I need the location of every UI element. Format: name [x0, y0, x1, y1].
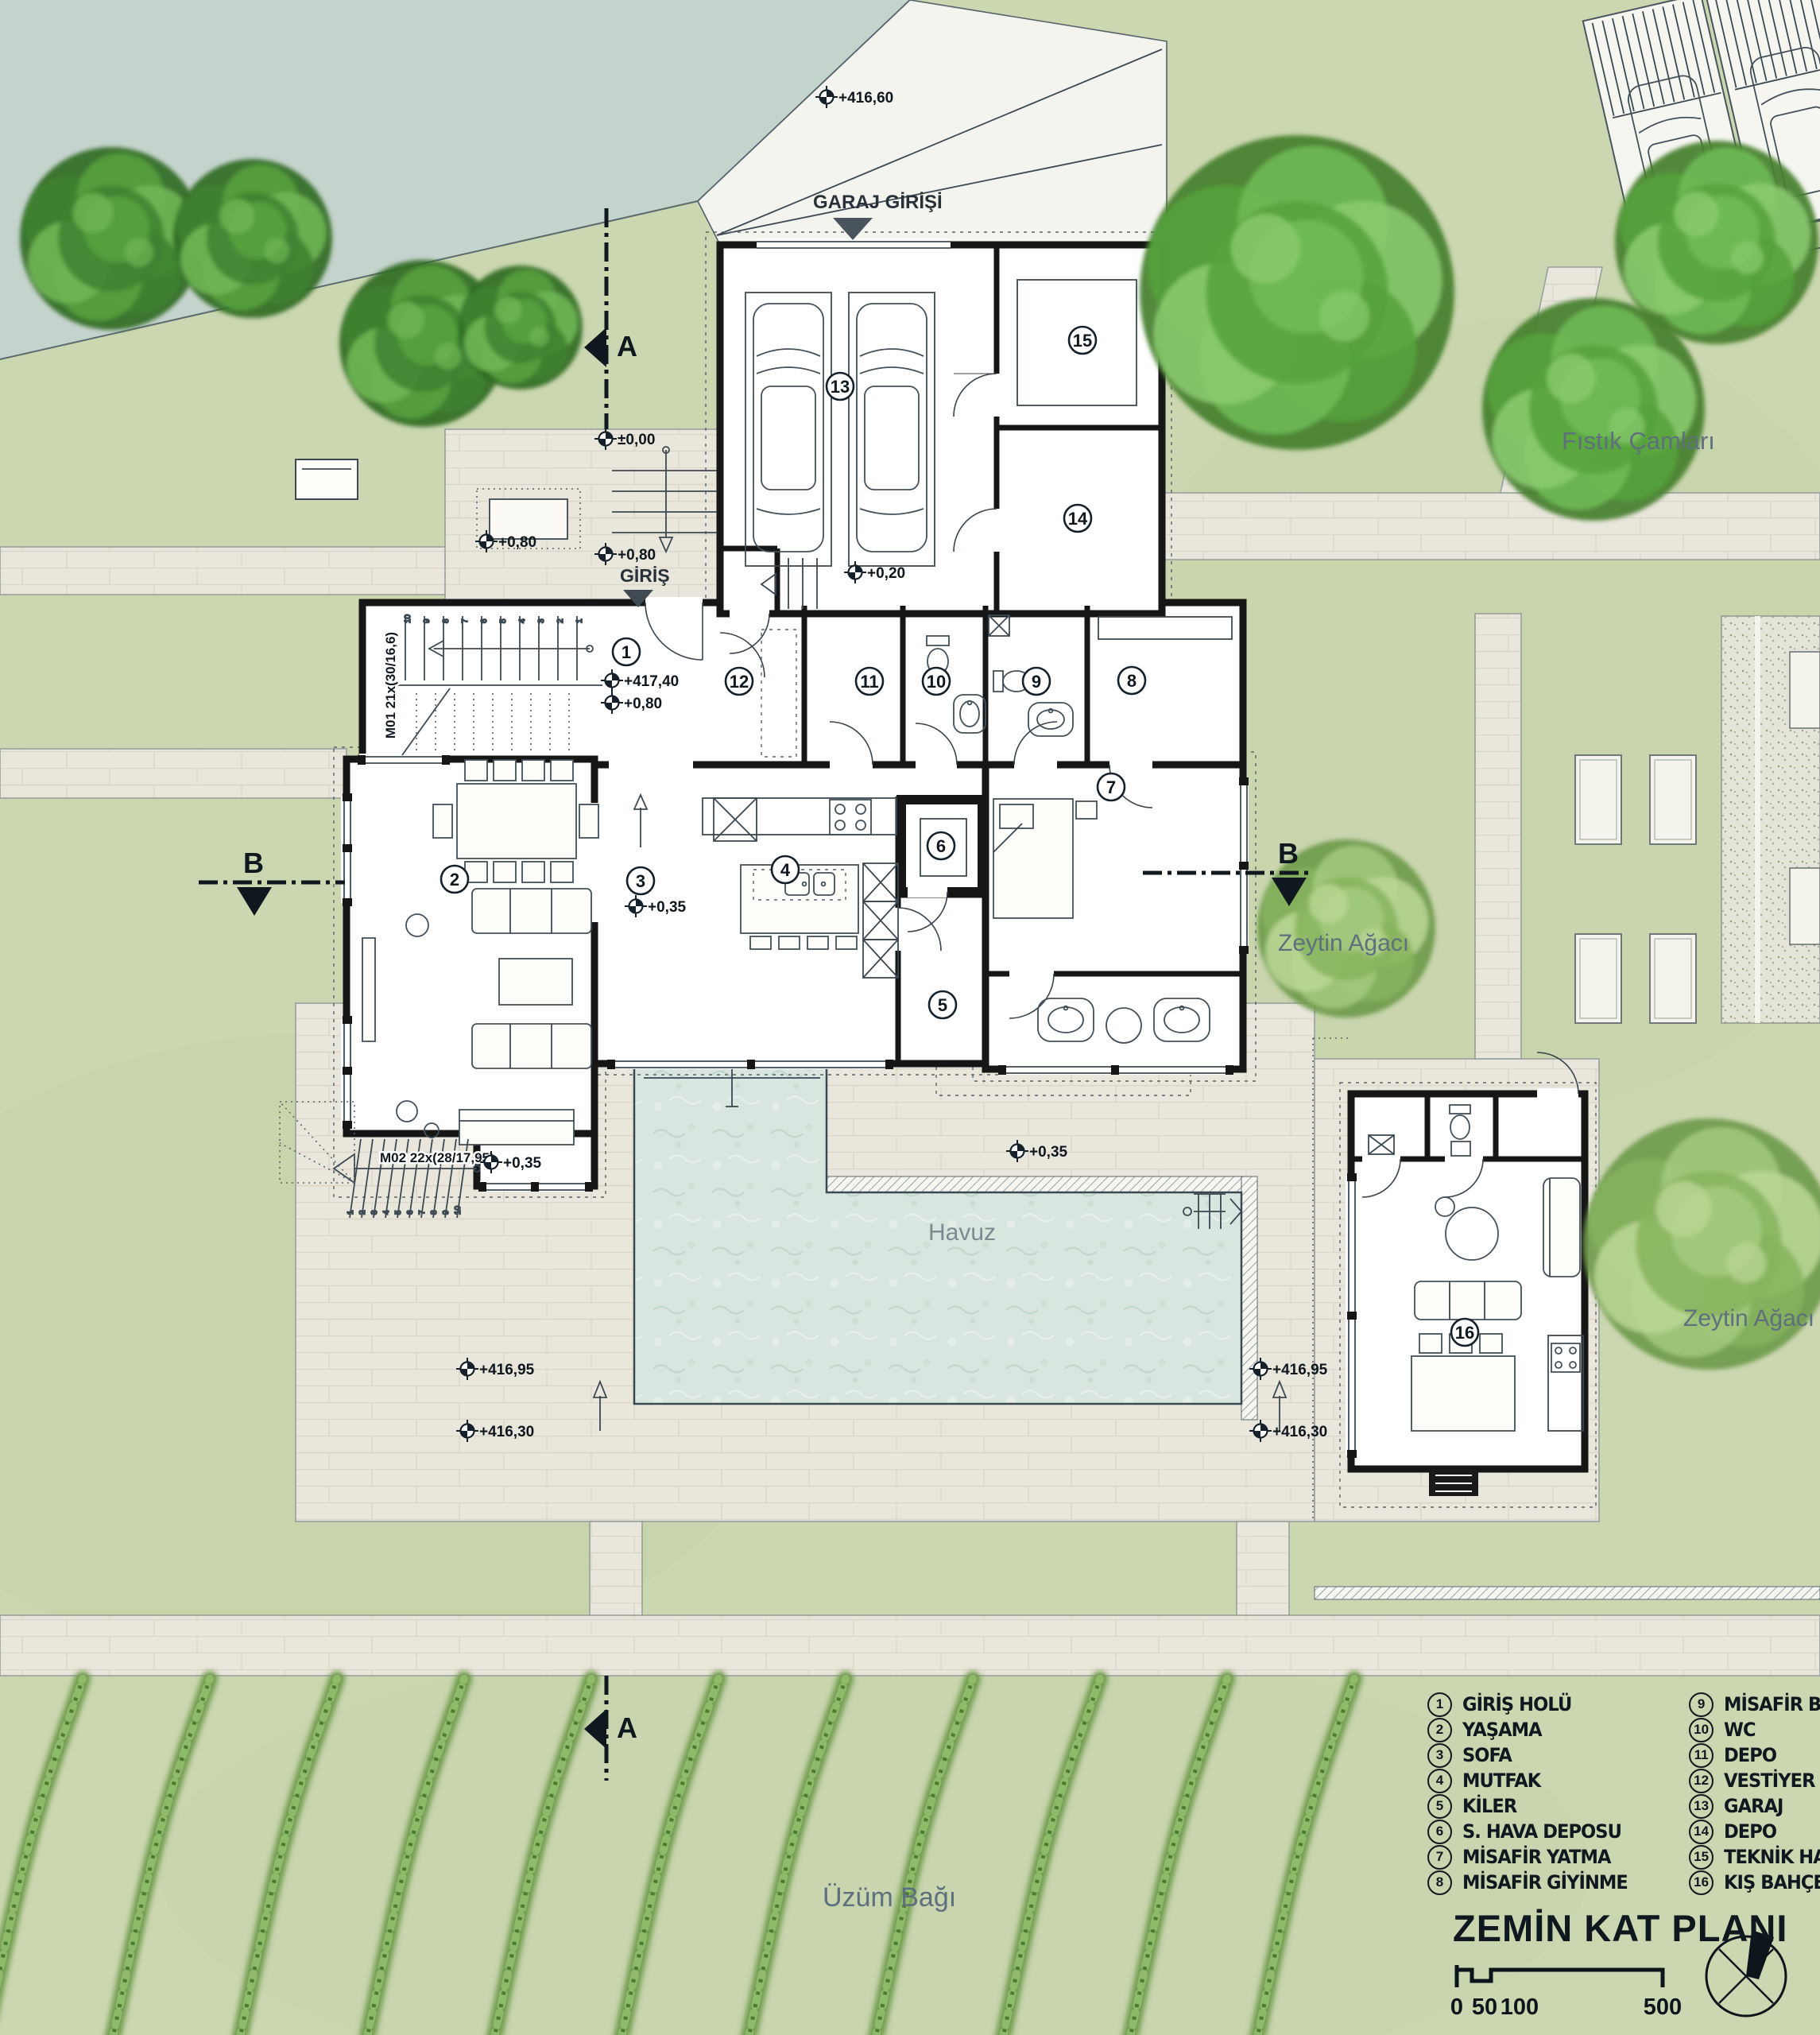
- legend-item-number: 5: [1427, 1794, 1452, 1819]
- room-number-badge: 5: [929, 991, 956, 1018]
- legend-item: 11DEPO: [1689, 1742, 1820, 1768]
- legend-item-number: 7: [1427, 1845, 1452, 1870]
- legend: 1GİRİŞ HOLÜ2YAŞAMA3SOFA4MUTFAK5KİLER6S. …: [1427, 1692, 1820, 1895]
- legend-item-label: MİSAFİR BANYO: [1724, 1693, 1820, 1715]
- section-label: B: [1278, 837, 1299, 870]
- room-number-badge: 13: [827, 373, 854, 400]
- legend-item: 1GİRİŞ HOLÜ: [1427, 1692, 1638, 1717]
- elevation-value: +416,60: [838, 90, 893, 107]
- legend-item-label: S. HAVA DEPOSU: [1462, 1820, 1621, 1843]
- room-number-badge: 15: [1069, 327, 1096, 354]
- room-number: 14: [1068, 509, 1088, 529]
- room-number-badge: 2: [441, 866, 468, 893]
- legend-item: 15TEKNİK HACİM: [1689, 1844, 1820, 1870]
- pine-trees-label: Fıstık Çamları: [1562, 427, 1715, 455]
- page-title: ZEMİN KAT PLANI: [1453, 1906, 1787, 1950]
- elevation-value: +416,30: [479, 1424, 534, 1440]
- svg-text:10: 10: [404, 614, 412, 623]
- legend-item: 13GARAJ: [1689, 1793, 1820, 1819]
- room-number-badge: 9: [1023, 668, 1050, 695]
- svg-text:8: 8: [442, 618, 451, 623]
- dining-table: [1411, 1356, 1515, 1431]
- site-plan: Havuz Üzüm Bağı: [0, 0, 1820, 2035]
- legend-item-number: 8: [1427, 1870, 1452, 1895]
- legend-item-number: 3: [1427, 1743, 1452, 1768]
- room-number-badge: 8: [1118, 667, 1145, 694]
- room-number: 3: [636, 871, 645, 891]
- room-number: 6: [936, 836, 946, 856]
- olive-tree-label: Zeytin Ağacı: [1278, 930, 1409, 956]
- wg-stoop: [1429, 1469, 1478, 1496]
- svg-text:5: 5: [499, 618, 508, 623]
- room-number-badge: 12: [726, 668, 753, 695]
- legend-item: 4MUTFAK: [1427, 1768, 1638, 1793]
- tv-console: [362, 938, 375, 1041]
- elevation-value: +0,80: [498, 534, 536, 551]
- legend-item: 12VESTİYER: [1689, 1768, 1820, 1793]
- room-number-badge: 10: [923, 668, 950, 695]
- legend-item: 14DEPO: [1689, 1819, 1820, 1844]
- coffee-table: [499, 959, 572, 1005]
- sofa: [1543, 1178, 1580, 1277]
- legend-item-number: 4: [1427, 1769, 1452, 1793]
- room-number: 15: [1073, 331, 1092, 351]
- bottom-path: [0, 1615, 1820, 1676]
- elevation-value: +416,95: [1272, 1362, 1328, 1378]
- legend-item: 5KİLER: [1427, 1793, 1638, 1819]
- svg-text:10: 10: [454, 1205, 463, 1215]
- legend-item: 8MİSAFİR GİYİNME: [1427, 1870, 1638, 1895]
- legend-item-label: KİLER: [1462, 1795, 1516, 1817]
- sofa: [472, 1024, 591, 1068]
- olive-tree-label-2: Zeytin Ağacı: [1683, 1305, 1814, 1331]
- svg-text:8: 8: [430, 1210, 439, 1215]
- legend-item-number: 11: [1689, 1743, 1714, 1768]
- room-number-badge: 6: [927, 832, 955, 859]
- room-number-badge: 7: [1098, 773, 1125, 800]
- legend-item: 6S. HAVA DEPOSU: [1427, 1819, 1638, 1844]
- pool-label: Havuz: [928, 1219, 996, 1246]
- svg-text:7: 7: [461, 618, 470, 623]
- room-number: 4: [780, 860, 791, 880]
- svg-text:2: 2: [556, 618, 565, 623]
- winter-garden: [1340, 1052, 1596, 1507]
- garage-entry-label: GARAJ GİRİŞİ: [813, 192, 943, 213]
- legend-item-number: 10: [1689, 1718, 1714, 1742]
- tree: [1615, 141, 1818, 344]
- scale-tick: 500: [1644, 1994, 1682, 2020]
- legend-item-number: 16: [1689, 1870, 1714, 1895]
- island: [741, 865, 858, 933]
- room-number-badge: 14: [1064, 505, 1091, 532]
- room-number: 2: [450, 870, 459, 890]
- section-label: B: [243, 847, 264, 879]
- room-number: 12: [730, 672, 749, 692]
- svg-text:1: 1: [575, 618, 584, 623]
- legend-item-label: MİSAFİR GİYİNME: [1462, 1871, 1628, 1894]
- legend-item-label: YAŞAMA: [1462, 1719, 1542, 1741]
- svg-text:5: 5: [394, 1210, 403, 1215]
- room-number: 13: [831, 377, 850, 397]
- stair-label: M02 22x(28/17,95): [380, 1150, 494, 1165]
- legend-item-number: 1: [1427, 1692, 1452, 1717]
- elevation-value: +0,35: [1029, 1144, 1068, 1161]
- svg-text:6: 6: [480, 618, 489, 623]
- stair-label: M01 21x(30/16,6): [383, 632, 398, 738]
- svg-text:2: 2: [358, 1210, 367, 1215]
- legend-column-2: 9MİSAFİR BANYO10WC11DEPO12VESTİYER13GARA…: [1689, 1692, 1820, 1895]
- scale-tick: 100: [1501, 1994, 1539, 2020]
- bench: [459, 1110, 574, 1145]
- elevation-marker: +416,60: [815, 86, 893, 108]
- retaining-wall: [1315, 1587, 1820, 1599]
- nightstand: [1076, 801, 1097, 819]
- legend-item-number: 9: [1689, 1692, 1714, 1717]
- entry-label: GİRİŞ: [620, 565, 670, 586]
- tree: [459, 266, 583, 390]
- elevation-value: +0,35: [503, 1155, 542, 1172]
- sofa: [1415, 1281, 1521, 1320]
- elevation-value: +416,95: [479, 1362, 535, 1378]
- dining-table: [457, 784, 576, 859]
- svg-text:9: 9: [442, 1210, 451, 1215]
- elevation-value: +417,40: [624, 673, 679, 690]
- legend-item: 16KIŞ BAHÇESİ: [1689, 1870, 1820, 1895]
- room-number: 7: [1106, 777, 1116, 797]
- vineyard-label: Üzüm Bağı: [823, 1882, 956, 1913]
- room-number: 1: [622, 642, 631, 662]
- scale-tick: 0: [1450, 1994, 1463, 2020]
- legend-item-number: 13: [1689, 1794, 1714, 1819]
- section-label: A: [617, 330, 637, 362]
- legend-item-label: GARAJ: [1724, 1795, 1783, 1817]
- room-number-badge: 16: [1451, 1319, 1478, 1346]
- scale-tick: 50: [1472, 1994, 1497, 2020]
- elevation-value: +0,35: [648, 899, 687, 916]
- elevation-marker: +416,95: [1249, 1358, 1328, 1380]
- sofa: [472, 889, 591, 933]
- svg-text:3: 3: [370, 1210, 379, 1215]
- room-number-badge: 3: [627, 867, 654, 894]
- legend-item: 3SOFA: [1427, 1742, 1638, 1768]
- elevation-value: ±0,00: [618, 432, 655, 448]
- legend-item-label: MİSAFİR YATMA: [1462, 1846, 1611, 1868]
- legend-item-label: DEPO: [1724, 1744, 1776, 1766]
- legend-item-number: 12: [1689, 1769, 1714, 1793]
- legend-column-1: 1GİRİŞ HOLÜ2YAŞAMA3SOFA4MUTFAK5KİLER6S. …: [1427, 1692, 1638, 1895]
- room-number: 5: [938, 995, 947, 1015]
- legend-item: 10WC: [1689, 1717, 1820, 1742]
- svg-text:4: 4: [382, 1210, 391, 1215]
- legend-item: 7MİSAFİR YATMA: [1427, 1844, 1638, 1870]
- svg-text:7: 7: [418, 1210, 427, 1215]
- elevation-value: +0,80: [624, 696, 662, 712]
- elevation-marker: +416,30: [1249, 1420, 1327, 1442]
- room-number: 9: [1032, 672, 1041, 692]
- elevation-value: +416,30: [1272, 1424, 1327, 1440]
- tree: [1140, 135, 1454, 450]
- elevation-value: +0,20: [867, 565, 905, 582]
- tree: [173, 159, 332, 318]
- elevation-marker: +416,30: [456, 1420, 534, 1442]
- room-number-badge: 4: [772, 856, 799, 883]
- svg-text:3: 3: [537, 618, 546, 623]
- room-number: 8: [1127, 671, 1137, 691]
- room-number: 11: [860, 672, 878, 692]
- svg-text:1: 1: [347, 1210, 355, 1215]
- section-label: A: [617, 1711, 637, 1744]
- legend-item-label: VESTİYER: [1724, 1769, 1815, 1792]
- legend-item-number: 2: [1427, 1718, 1452, 1742]
- legend-item-label: MUTFAK: [1462, 1769, 1540, 1792]
- svg-text:6: 6: [406, 1210, 415, 1215]
- legend-item-label: WC: [1724, 1719, 1756, 1741]
- room-number-badge: 11: [856, 668, 883, 695]
- elevation-value: +0,80: [618, 547, 656, 564]
- legend-item-label: KIŞ BAHÇESİ: [1724, 1871, 1820, 1894]
- svg-text:9: 9: [423, 618, 432, 623]
- legend-item-label: SOFA: [1462, 1744, 1512, 1766]
- elevation-marker: +416,95: [456, 1358, 535, 1380]
- legend-item-number: 14: [1689, 1820, 1714, 1844]
- legend-item-number: 6: [1427, 1820, 1452, 1844]
- legend-item: 9MİSAFİR BANYO: [1689, 1692, 1820, 1717]
- svg-text:4: 4: [518, 618, 527, 623]
- legend-item: 2YAŞAMA: [1427, 1717, 1638, 1742]
- room-number-badge: 1: [613, 638, 640, 665]
- legend-item-label: DEPO: [1724, 1820, 1776, 1843]
- legend-item-label: TEKNİK HACİM: [1724, 1846, 1820, 1868]
- legend-item-number: 15: [1689, 1845, 1714, 1870]
- legend-item-label: GİRİŞ HOLÜ: [1462, 1693, 1571, 1715]
- elevation-marker: +417,40: [601, 669, 679, 692]
- room-number: 16: [1455, 1323, 1474, 1343]
- room-number: 10: [927, 672, 946, 692]
